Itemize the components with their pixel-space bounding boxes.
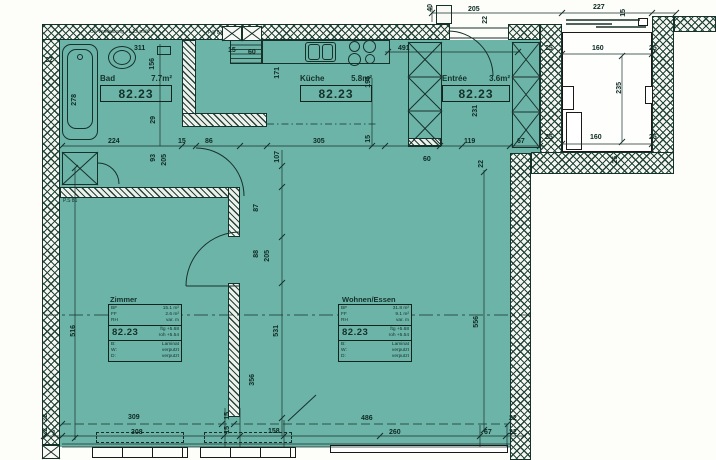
ps-note-left: P.S 81	[63, 199, 77, 204]
roh-level: roh +5.54	[159, 333, 179, 338]
wall-top-east	[508, 24, 540, 40]
wall-zimmer-wohnen-upper	[228, 187, 240, 237]
elevator-fixture-1	[562, 86, 574, 110]
dimension-label: 60	[423, 156, 431, 163]
stove-burner-2	[363, 40, 376, 53]
dimension-label: 22	[45, 57, 53, 64]
dimension-label: 160	[592, 45, 604, 52]
dimension-label: 278	[71, 94, 78, 106]
wall-corridor-zimmer	[60, 187, 240, 198]
dimension-label: 156	[149, 58, 156, 70]
dimension-label: 15	[620, 9, 627, 17]
dimension-label: 224	[108, 138, 120, 145]
dimension-label: 119	[464, 138, 475, 145]
dimension-label: 86	[205, 138, 213, 145]
dimension-label: 160	[590, 134, 602, 141]
bathtub-inner	[67, 49, 93, 129]
dimension-label: 195	[365, 76, 372, 88]
dimension-label: 25	[545, 134, 553, 141]
stove-burner-3	[348, 53, 361, 66]
bad-label: Bad 7.7m²	[100, 74, 172, 83]
elevator-fixture-2	[566, 112, 582, 150]
roh-level: roh +5.54	[389, 333, 409, 338]
construction-note: Ok Verkleidung +1.12 müK	[90, 30, 150, 35]
rh-value: var. m	[166, 318, 179, 324]
ftg-level: ftg +5.68	[160, 327, 179, 332]
dimension-label: 22	[42, 428, 49, 436]
ftg-level: ftg +5.68	[390, 327, 409, 332]
elevator-door-panel	[638, 18, 648, 26]
wohnen-unit: 82.23	[341, 327, 368, 339]
window-zimmer-1	[92, 447, 188, 458]
dimension-label: 88	[253, 250, 260, 258]
corner-sill	[42, 445, 60, 459]
dimension-label: 311	[134, 45, 145, 52]
wall-right-lower	[510, 153, 531, 460]
wc-cistern	[157, 46, 171, 55]
entree-area: 3.6m²	[489, 74, 510, 83]
dimension-label: 235	[616, 82, 623, 94]
stove-burner-1	[349, 41, 360, 52]
dimension-label: 531	[273, 325, 280, 337]
dimension-label: 308	[131, 429, 143, 436]
ceiling-value: verputzt	[392, 354, 409, 360]
dimension-label: 60	[248, 49, 256, 56]
entree-name: Entrée	[442, 74, 467, 83]
dimension-label: 29	[150, 116, 157, 124]
wohnen-title: Wohnen/Essen	[342, 295, 396, 304]
ceiling-label: D:	[341, 354, 346, 360]
zimmer-unit: 82.23	[111, 327, 138, 339]
top-wall-niche	[436, 5, 452, 24]
dimension-label: 15	[365, 135, 372, 143]
wall-top-right-band	[674, 16, 716, 32]
wall-left	[42, 24, 60, 445]
vent-box-2	[242, 26, 262, 41]
dimension-label: 205	[161, 154, 168, 166]
dimension-label: 40	[427, 4, 434, 12]
ceiling-label: D:	[111, 354, 116, 360]
wohnen-info-table: BF31.8 m² FF9.1 m² RHvar. m 82.23 ftg +5…	[338, 304, 412, 362]
bad-name: Bad	[100, 74, 115, 83]
zimmer-info-table: BF15.1 m² FF2.6 m² RHvar. m 82.23 ftg +5…	[108, 304, 182, 362]
dimension-label: 356	[249, 374, 256, 386]
elevator-fixture-3	[645, 86, 653, 104]
dimension-label: 67	[517, 138, 525, 145]
tall-cabinet-column	[408, 42, 442, 146]
dimension-label: 25	[545, 45, 553, 52]
dimension-label: 227	[593, 4, 605, 11]
rh-value: var. m	[396, 318, 409, 324]
kitchen-sink-bowl-left	[308, 44, 320, 60]
dimension-label: 25	[612, 156, 619, 164]
dimension-label: 486	[361, 415, 373, 422]
dimension-label: 15	[178, 138, 186, 145]
dimension-label: 260	[389, 429, 401, 436]
dimension-label: 22	[509, 415, 517, 422]
vent-box-1	[222, 26, 242, 41]
bad-unit: 82.23	[118, 87, 153, 101]
bathtub-drain	[77, 54, 83, 60]
kueche-name: Küche	[300, 74, 324, 83]
corridor-closet	[62, 152, 98, 185]
dimension-label: 22	[478, 160, 485, 168]
dimension-label: 15	[224, 426, 231, 434]
washbasin-inner	[113, 50, 131, 65]
ps-note-top: P.S 81	[208, 31, 222, 36]
dimension-label: 205	[468, 6, 480, 13]
stove-burner-4	[365, 54, 375, 64]
dimension-label: 25	[649, 45, 657, 52]
entree-unit-box: 82.23	[442, 85, 510, 102]
dimension-label: 1	[52, 430, 56, 437]
dimension-label: 93	[150, 154, 157, 162]
elevator-sliding-door	[566, 20, 646, 27]
rh-label: RH	[111, 318, 118, 324]
dimension-label: 491	[398, 45, 410, 52]
entree-label: Entrée 3.6m²	[442, 74, 510, 83]
dimension-label: 22	[509, 429, 517, 436]
rh-label: RH	[341, 318, 348, 324]
dimension-label: 171	[274, 67, 281, 79]
ceiling-value: verputzt	[162, 354, 179, 360]
bad-area: 7.7m²	[151, 74, 172, 83]
kueche-unit-box: 82.23	[300, 85, 372, 102]
dimension-label: 158	[268, 428, 280, 435]
zimmer-title: Zimmer	[110, 295, 137, 304]
wall-elevator-right	[652, 16, 674, 174]
dimension-label: 22	[482, 16, 489, 24]
dimension-label: 556	[473, 316, 480, 328]
dimension-label: 15	[228, 47, 236, 54]
kueche-label: Küche 5.8m²	[300, 74, 372, 83]
dimension-label: 231	[472, 105, 479, 117]
wall-bad-kueche	[182, 40, 196, 115]
dimension-label: 107	[274, 151, 281, 163]
dimension-label: 309	[128, 414, 140, 421]
dimension-label: 305	[313, 138, 325, 145]
dimension-label: 67	[484, 429, 492, 436]
floor-plan: Bad 7.7m² 82.23 Küche 5.8m² 82.23 Entrée…	[0, 0, 716, 460]
dimension-label: 25	[649, 134, 657, 141]
kueche-unit: 82.23	[318, 87, 353, 101]
bad-unit-box: 82.23	[100, 85, 172, 102]
dimension-label: 15	[224, 412, 231, 420]
dimension-label: 205	[264, 250, 271, 262]
wall-zimmer-wohnen-lower	[228, 283, 240, 417]
window-wohnen	[330, 445, 508, 453]
dimension-label: 87	[253, 204, 260, 212]
wardrobe-column	[512, 42, 540, 148]
entree-unit: 82.23	[458, 87, 493, 101]
dimension-label: 516	[70, 325, 77, 337]
wall-kueche-corridor	[182, 113, 267, 127]
window-zimmer-2	[200, 447, 296, 458]
dimension-label: 22	[42, 414, 49, 422]
kitchen-sink-bowl-right	[322, 44, 333, 60]
wall-elevator-bottom	[531, 152, 674, 174]
